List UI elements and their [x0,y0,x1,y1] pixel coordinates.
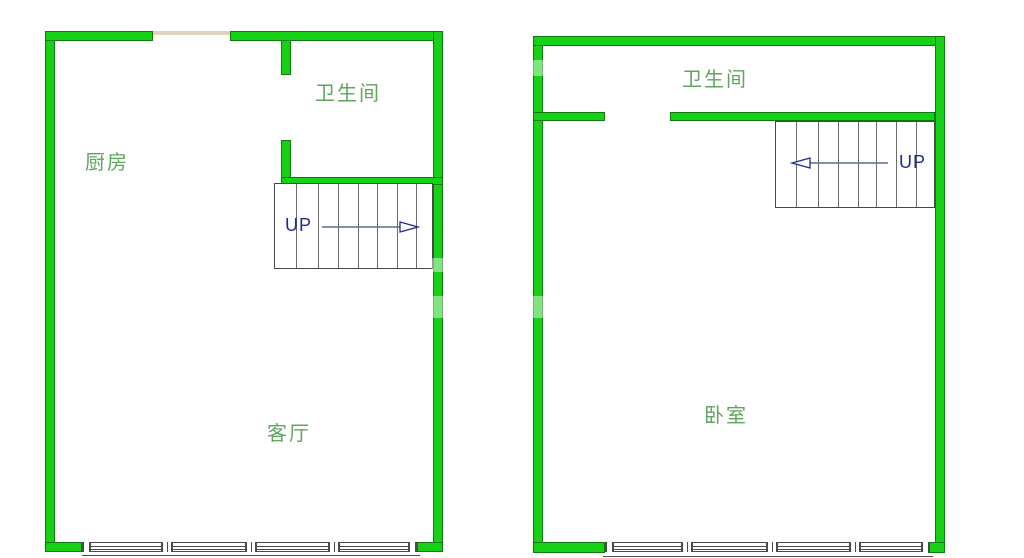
window-mullion [681,542,693,552]
window-mullion [766,542,778,552]
stair-direction-arrow-first-floor [320,219,420,235]
watermark-smudge [532,296,544,318]
window-end-post [82,542,91,552]
wall-bottom-right [417,542,443,552]
window-sill-line [82,555,420,556]
room-label-bathroom-second-floor: 卫生间 [682,63,748,92]
room-label-living-room: 客厅 [267,417,311,446]
watermark-smudge [533,60,544,76]
room-label-kitchen: 厨房 [85,146,129,175]
wall-right [433,31,443,552]
stair-up-label-second-floor: UP [899,152,926,173]
window-mullion [849,542,861,552]
window-sill-line [603,556,933,557]
stair-tread [318,184,319,268]
window-mullion [245,542,257,552]
window-end-post [605,542,614,552]
stair-up-label-first-floor: UP [285,215,312,236]
floor-plan-canvas: UP 厨房 卫生间 客厅 [0,0,1024,558]
window-mullion [328,542,340,552]
wall-top-segment-a [45,31,153,41]
stair-direction-arrow-second-floor [790,155,890,171]
window-first-floor [82,542,417,552]
stair-tread [896,122,897,207]
wall-bottom-left [45,542,82,552]
room-label-bedroom: 卧室 [704,399,748,428]
wall-top-segment-b [230,31,443,41]
wall-bathroom-partition-upper [281,40,291,75]
wall-left [45,31,55,552]
window-second-floor [605,542,930,552]
window-end-post [921,542,930,552]
wall-top [533,36,945,46]
room-label-bathroom-first-floor: 卫生间 [315,77,381,106]
window-mullion [161,542,173,552]
wall-bottom-left [533,542,605,553]
wall-bottom-right [928,542,945,553]
watermark-smudge [432,296,444,318]
watermark-smudge [432,258,444,272]
wall-bathroom-segment-a [533,112,605,121]
door-opening [153,31,230,35]
window-end-post [408,542,417,552]
wall-right [935,36,945,553]
wall-bathroom-segment-b [670,112,935,121]
